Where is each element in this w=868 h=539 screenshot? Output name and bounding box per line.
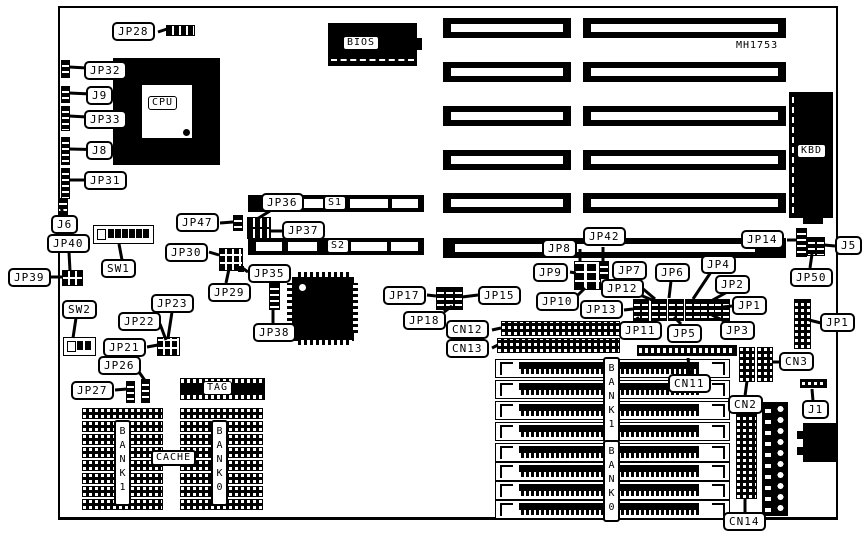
label-jp12: JP12 (601, 279, 644, 298)
pointer-line (570, 272, 576, 273)
pointer-line (226, 269, 229, 283)
label-jp14: JP14 (741, 230, 784, 249)
label-j1: J1 (802, 400, 829, 419)
label-jp13: JP13 (580, 300, 623, 319)
pointer-line (147, 345, 158, 347)
pointer-line (160, 324, 166, 340)
label-cn14: CN14 (723, 512, 766, 531)
label-jp28: JP28 (112, 22, 155, 41)
pointer-line (69, 252, 70, 271)
label-jp7: JP7 (612, 261, 647, 280)
label-cn12: CN12 (446, 320, 489, 339)
pointer-line (669, 281, 671, 298)
label-jp26: JP26 (98, 356, 141, 375)
pointer-line (723, 306, 732, 307)
pointer-line (444, 306, 452, 312)
pointer-line (73, 318, 76, 338)
label-sw1: SW1 (101, 259, 136, 278)
pointer-line (158, 29, 167, 32)
label-jp6: JP6 (655, 263, 690, 282)
label-jp47: JP47 (176, 213, 219, 232)
pointer-line (257, 211, 270, 219)
label-jp1-row: JP1 (732, 296, 767, 315)
label-jp17: JP17 (383, 286, 426, 305)
label-cn2: CN2 (728, 395, 763, 414)
s1-label: S1 (324, 196, 346, 210)
label-jp3: JP3 (720, 321, 755, 340)
label-jp35: JP35 (248, 264, 291, 283)
label-jp32: JP32 (84, 61, 127, 80)
label-j8: J8 (86, 141, 113, 160)
label-jp31: JP31 (84, 171, 127, 190)
label-jp1-header: JP1 (820, 313, 855, 332)
label-jp22: JP22 (118, 312, 161, 331)
pointer-line (492, 345, 498, 348)
label-jp23: JP23 (151, 294, 194, 313)
label-cn13: CN13 (446, 339, 489, 358)
pointer-line (119, 244, 122, 260)
label-jp2: JP2 (715, 275, 750, 294)
label-jp10: JP10 (536, 292, 579, 311)
pointer-line (220, 222, 233, 223)
label-jp15: JP15 (478, 286, 521, 305)
label-jp27: JP27 (71, 381, 114, 400)
label-jp38: JP38 (253, 323, 296, 342)
pointer-line (462, 295, 478, 297)
pointer-line (693, 272, 711, 299)
simm-bank1-label: BANK 1 (603, 357, 620, 443)
pointer-line (674, 317, 681, 324)
label-cn11: CN11 (668, 374, 711, 393)
label-jp50: JP50 (790, 268, 833, 287)
simm-bank0-label: BANK 0 (603, 440, 620, 522)
cpu-label: CPU (148, 96, 177, 110)
pointer-line (492, 328, 501, 330)
label-jp33: JP33 (84, 110, 127, 129)
s2-label: S2 (327, 239, 349, 253)
pointer-line (688, 358, 690, 375)
pointer-line (745, 381, 747, 396)
pointer-line (61, 206, 63, 215)
pointer-line (624, 309, 633, 310)
label-jp42: JP42 (583, 227, 626, 246)
label-jp36: JP36 (261, 193, 304, 212)
pointer-line (824, 245, 835, 246)
label-cn3: CN3 (779, 352, 814, 371)
label-jp4: JP4 (701, 255, 736, 274)
label-j5: J5 (835, 236, 862, 255)
label-jp37: JP37 (282, 221, 325, 240)
part-number: MH1753 (736, 40, 778, 51)
label-sw2: SW2 (62, 300, 97, 319)
label-jp5: JP5 (667, 324, 702, 343)
label-jp8: JP8 (542, 239, 577, 258)
label-j6: J6 (51, 215, 78, 234)
label-jp29: JP29 (208, 283, 251, 302)
tag-label: TAG (203, 381, 232, 395)
pointer-line (810, 254, 812, 268)
cache-label: CACHE (151, 450, 196, 466)
label-jp9: JP9 (533, 263, 568, 282)
pointer-line (115, 389, 127, 390)
cache-bank1-label: BANK 1 (114, 420, 131, 506)
label-jp40: JP40 (47, 234, 90, 253)
label-jp21: JP21 (103, 338, 146, 357)
label-jp39: JP39 (8, 268, 51, 287)
label-jp18: JP18 (403, 311, 446, 330)
label-jp11: JP11 (619, 321, 662, 340)
cache-bank0-label: BANK 0 (211, 420, 228, 506)
bios-label: BIOS (343, 36, 379, 50)
motherboard-diagram: MH1753 BIOS CPU KBD S1 S2 (0, 0, 868, 539)
pointer-line (139, 372, 146, 382)
pointer-line (209, 252, 219, 255)
pointer-line (168, 312, 172, 338)
label-jp30: JP30 (165, 243, 208, 262)
pointer-line (241, 267, 248, 272)
label-j9: J9 (86, 86, 113, 105)
pointer-line (427, 295, 436, 296)
kbd-label: KBD (797, 144, 826, 158)
